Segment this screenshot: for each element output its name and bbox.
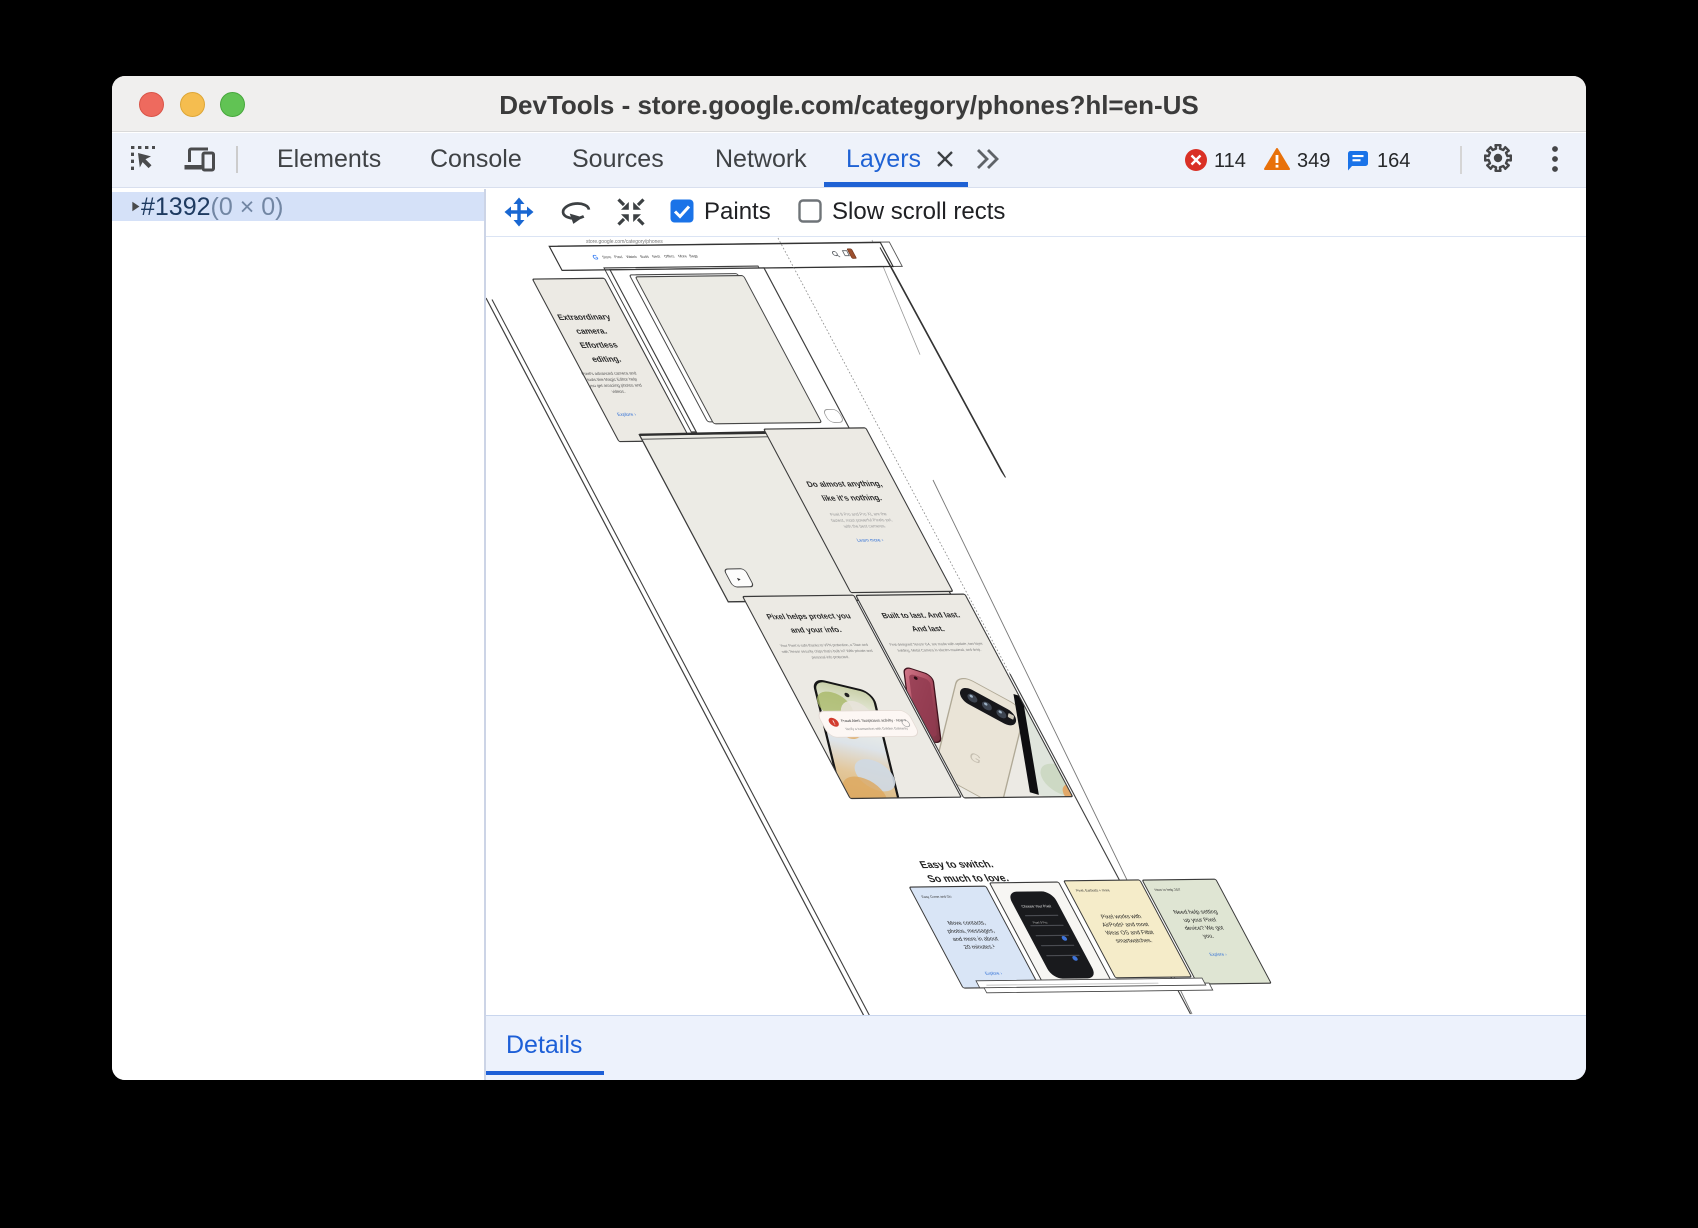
svg-text:Pixel works with: Pixel works with bbox=[1100, 914, 1143, 920]
svg-text:personal info protected.: personal info protected. bbox=[811, 655, 850, 659]
svg-text:Explore ›: Explore › bbox=[616, 412, 638, 418]
svg-text:Built to last. And last.: Built to last. And last. bbox=[880, 611, 962, 620]
svg-text:tools like Magic Editor help: tools like Magic Editor help bbox=[586, 377, 639, 382]
svg-text:editing.: editing. bbox=[589, 354, 622, 364]
svg-text:Explore ›: Explore › bbox=[984, 971, 1004, 976]
svg-text:Need help setting: Need help setting bbox=[1173, 910, 1219, 916]
svg-text:Easy to switch.: Easy to switch. bbox=[918, 859, 996, 871]
svg-text:Pixel, Earbuds + more: Pixel, Earbuds + more bbox=[1075, 889, 1110, 893]
svg-text:Pixel's advanced camera and: Pixel's advanced camera and bbox=[580, 371, 637, 376]
svg-text:Effortless: Effortless bbox=[578, 340, 620, 350]
svg-text:up your Pixel: up your Pixel bbox=[1183, 918, 1218, 924]
svg-text:smartwatches.: smartwatches. bbox=[1115, 938, 1154, 944]
svg-text:and more in about: and more in about bbox=[952, 937, 1000, 943]
svg-text:you get amazing photos and: you get amazing photos and bbox=[588, 383, 644, 388]
svg-text:Do almost anything,: Do almost anything, bbox=[804, 479, 883, 489]
svg-text:Fraud Alert: Suspicious activi: Fraud Alert: Suspicious activity · now ▾ bbox=[840, 718, 907, 723]
svg-text:Wear OS and Fitbit: Wear OS and Fitbit bbox=[1105, 930, 1156, 936]
svg-text:AirPods¹ and most: AirPods¹ and most bbox=[1101, 922, 1150, 928]
svg-text:and your info.: and your info. bbox=[789, 625, 844, 634]
svg-text:Verify a transaction with Gold: Verify a transaction with Golden Gateway bbox=[844, 727, 908, 731]
svg-text:device? We got: device? We got bbox=[1184, 926, 1226, 932]
svg-text:Extraordinary: Extraordinary bbox=[555, 312, 612, 322]
svg-text:like it's nothing.: like it's nothing. bbox=[820, 493, 884, 503]
svg-text:Pixel helps protect you: Pixel helps protect you bbox=[765, 612, 853, 621]
svg-text:Easy Come and Go: Easy Come and Go bbox=[921, 895, 953, 899]
svg-text:Pixel 9 Pro: Pixel 9 Pro bbox=[1032, 921, 1049, 925]
svg-text:fastest, most powerful Pixels: fastest, most powerful Pixels yet, bbox=[830, 517, 893, 522]
svg-text:Pixel 9 Pro and Pro XL are the: Pixel 9 Pro and Pro XL are the bbox=[829, 511, 888, 516]
svg-text:Learn more ›: Learn more › bbox=[856, 538, 886, 544]
svg-text:videos.: videos. bbox=[611, 389, 627, 394]
svg-text:Explore ›: Explore › bbox=[1208, 952, 1228, 957]
svg-text:Move contacts,: Move contacts, bbox=[947, 921, 988, 927]
svg-text:20 minutes.¹: 20 minutes.¹ bbox=[963, 945, 997, 951]
svg-text:camera.: camera. bbox=[574, 326, 609, 336]
svg-text:photos, messages,: photos, messages, bbox=[946, 929, 996, 935]
svg-text:store.google.com/category/phon: store.google.com/category/phones bbox=[586, 239, 663, 245]
svg-text:Choose Your Pixel: Choose Your Pixel bbox=[1021, 905, 1052, 909]
svg-text:And last.: And last. bbox=[910, 625, 947, 634]
svg-text:Here to help 24/7: Here to help 24/7 bbox=[1154, 888, 1182, 892]
svg-text:with the best cameras.: with the best cameras. bbox=[843, 524, 887, 529]
